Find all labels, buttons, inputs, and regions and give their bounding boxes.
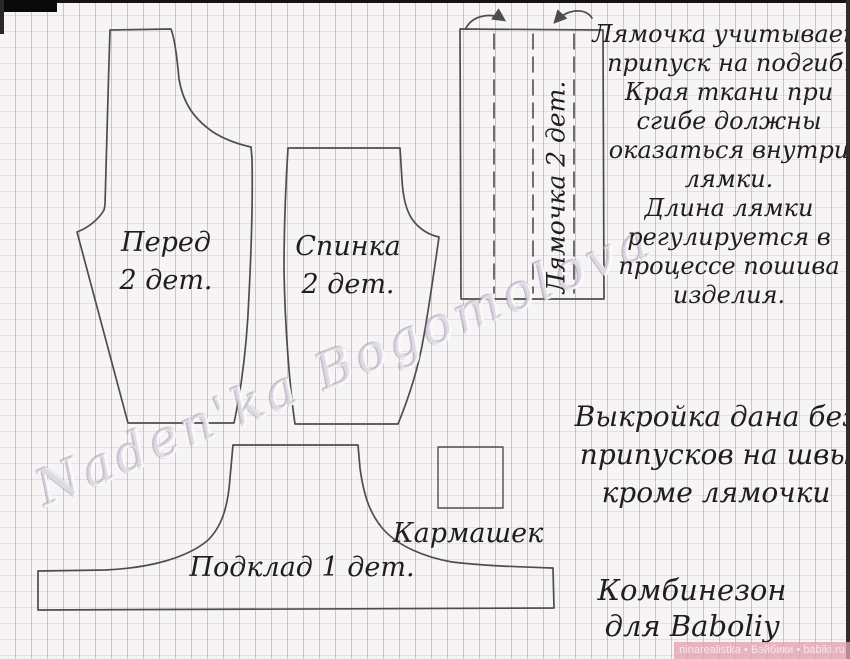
back-piece-name: Спинка [295, 228, 400, 266]
scan-top-border [0, 0, 850, 3]
back-piece-qty: 2 дет. [295, 266, 400, 304]
back-piece-label: Спинка 2 дет. [295, 228, 400, 304]
sewing-pattern-scan: Naden'ka Bogomolova Перед 2 дет. Спинка … [0, 0, 850, 659]
credit-watermark-bar: ninarealistka • Бэйбики • babiki.ru [674, 642, 850, 659]
scan-right-border [846, 0, 850, 659]
fold-arrow-left [466, 16, 504, 28]
lining-piece-label: Подклад 1 дет. [189, 552, 414, 583]
scan-corner-mark [0, 0, 57, 12]
note-line: изделия. [592, 281, 850, 310]
note-line: регулируется в [592, 223, 850, 252]
title-line: для Baboliy [598, 608, 787, 644]
pattern-title: Комбинезон для Baboliy [598, 572, 787, 644]
fold-arrow-right [555, 11, 592, 22]
note-line: припуск на подгиб. [592, 49, 850, 78]
note-line: лямки. [592, 165, 850, 194]
note-line: припусков на швы [575, 436, 850, 474]
note-line: Лямочка учитывает [592, 20, 850, 49]
note-line: Выкройка дана без [575, 398, 850, 436]
seam-allowance-note: Выкройка дана без припусков на швы кроме… [575, 398, 850, 512]
note-line: сгибе должны [592, 107, 850, 136]
front-piece-name: Перед [119, 224, 212, 262]
front-piece-label: Перед 2 дет. [119, 224, 212, 300]
strap-instruction-note: Лямочка учитывает припуск на подгиб. Кра… [592, 20, 850, 310]
scan-left-edge-mark [0, 0, 4, 34]
title-line: Комбинезон [598, 572, 787, 608]
strap-piece-label: Лямочка 2 дет. [542, 81, 571, 294]
pocket-label: Кармашек [393, 518, 543, 549]
note-line: Края ткани при [592, 78, 850, 107]
pocket-outline [438, 447, 503, 508]
note-line: процессе пошива [592, 252, 850, 281]
note-line: оказаться внутри [592, 136, 850, 165]
note-line: Длина лямки [592, 194, 850, 223]
note-line: кроме лямочки [575, 474, 850, 512]
front-piece-qty: 2 дет. [119, 262, 212, 300]
